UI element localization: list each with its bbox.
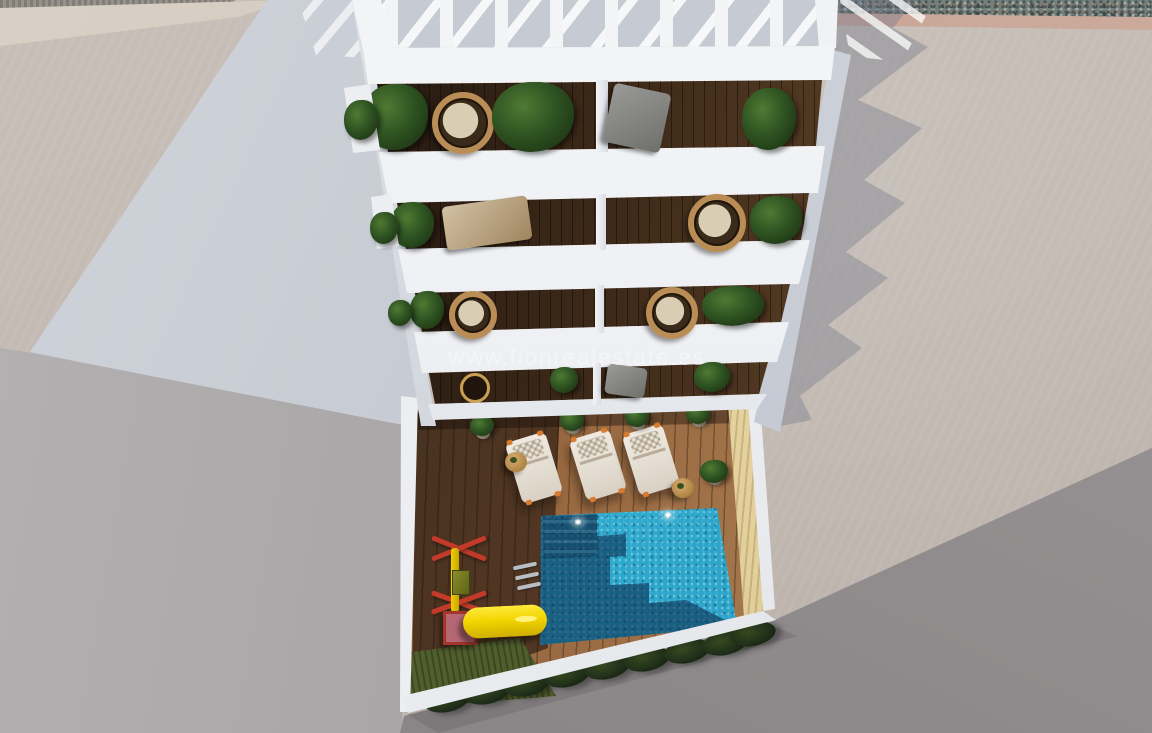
rattan-chair — [432, 92, 494, 154]
rattan-chair — [449, 291, 497, 339]
watermark: www.fionrealestate.es — [432, 344, 722, 371]
aerial-render: www.fionrealestate.es — [0, 0, 1152, 733]
side-table — [505, 452, 527, 472]
side-table — [672, 478, 694, 498]
balcony-divider — [596, 194, 606, 250]
pool-light — [663, 512, 673, 518]
round-table — [460, 373, 490, 403]
rattan-chair — [688, 194, 746, 252]
pool-light — [573, 519, 583, 525]
slide — [462, 604, 548, 639]
balcony-divider — [595, 285, 604, 333]
pool-ladder — [511, 560, 541, 590]
lounge-chair — [602, 83, 671, 154]
swing-seat — [452, 570, 470, 595]
rattan-chair — [646, 287, 698, 339]
